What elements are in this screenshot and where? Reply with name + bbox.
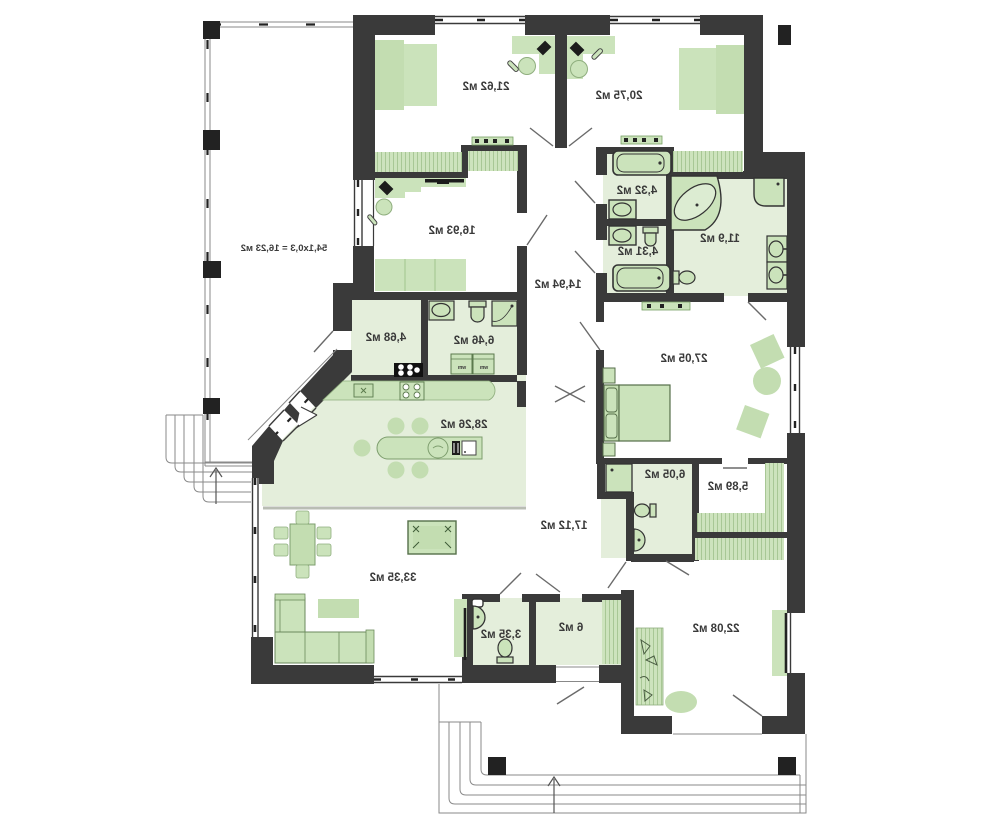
svg-text:11,9 м2: 11,9 м2 [700, 233, 740, 245]
svg-text:3,35 м2: 3,35 м2 [481, 629, 521, 641]
svg-text:20,75 м2: 20,75 м2 [596, 90, 643, 102]
svg-text:4,32 м2: 4,32 м2 [617, 185, 657, 197]
svg-text:22,08 м2: 22,08 м2 [693, 623, 740, 635]
svg-text:33,35 м2: 33,35 м2 [370, 572, 417, 584]
svg-text:4,68 м2: 4,68 м2 [366, 332, 406, 344]
svg-text:27,05 м2: 27,05 м2 [661, 353, 708, 365]
svg-text:6,05 м2: 6,05 м2 [645, 469, 685, 481]
svg-text:28,26 м2: 28,26 м2 [441, 419, 488, 431]
svg-text:6 м2: 6 м2 [559, 622, 584, 634]
svg-text:16,93 м2: 16,93 м2 [429, 225, 476, 237]
svg-text:14,94 м2: 14,94 м2 [535, 279, 582, 291]
svg-text:wm: wm [479, 365, 489, 371]
svg-text:4,31 м2: 4,31 м2 [618, 246, 658, 258]
svg-text:wm: wm [457, 365, 467, 371]
svg-text:21,62 м2: 21,62 м2 [463, 81, 510, 93]
svg-text:17,12 м2: 17,12 м2 [541, 520, 588, 532]
svg-text:6,46 м2: 6,46 м2 [454, 335, 494, 347]
svg-text:54,1x0,3 = 16,23 м2: 54,1x0,3 = 16,23 м2 [241, 243, 328, 254]
svg-text:5,89 м2: 5,89 м2 [708, 481, 748, 493]
